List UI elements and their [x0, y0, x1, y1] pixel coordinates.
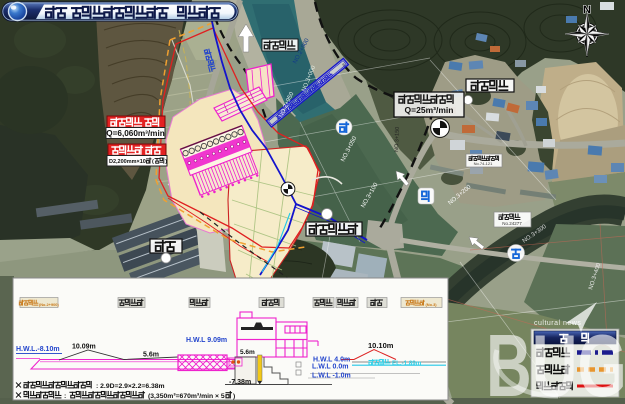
svg-text:(3,350m³=670m³/min × 5: (3,350m³=670m³/min × 5: [148, 393, 225, 400]
svg-text:N: N: [583, 4, 591, 16]
svg-text:H.W.L 9.09m: H.W.L 9.09m: [186, 337, 227, 344]
svg-text:): ): [165, 159, 167, 165]
svg-text::: :: [64, 393, 66, 400]
svg-text:(: (: [152, 159, 154, 165]
svg-text:10.09m: 10.09m: [72, 344, 96, 351]
svg-text:NO.3+150: NO.3+150: [394, 127, 401, 152]
svg-text:No.24277: No.24277: [502, 221, 522, 226]
svg-text:Q=6,060m³/min: Q=6,060m³/min: [106, 129, 164, 138]
svg-text:5.6m: 5.6m: [143, 352, 159, 359]
svg-text:L.W.L 0.0m: L.W.L 0.0m: [312, 364, 348, 371]
svg-text:L.W.L -1.0m: L.W.L -1.0m: [312, 373, 351, 380]
svg-text:Q=25m³/min: Q=25m³/min: [405, 105, 454, 115]
svg-text:H.W.L.-8.10m: H.W.L.-8.10m: [16, 346, 60, 353]
svg-text:): ): [233, 393, 235, 400]
svg-text:EL.-1.89m: EL.-1.89m: [392, 360, 422, 367]
svg-text:H.W.L 4.0m: H.W.L 4.0m: [313, 357, 350, 364]
svg-text:No.74-121: No.74-121: [474, 161, 493, 166]
svg-text:D2,200mm×10: D2,200mm×10: [109, 159, 146, 165]
svg-text:-7.38m: -7.38m: [229, 379, 251, 386]
svg-text:: 2.9D=2.9×2.2=6.38m: : 2.9D=2.9×2.2=6.38m: [96, 383, 165, 390]
svg-text:(No.3): (No.3): [426, 302, 438, 307]
svg-text:BUG: BUG: [486, 318, 625, 404]
svg-text:(No.2+900): (No.2+900): [39, 302, 59, 307]
svg-text:5.6m: 5.6m: [240, 349, 255, 356]
svg-text:10.10m: 10.10m: [368, 341, 394, 350]
